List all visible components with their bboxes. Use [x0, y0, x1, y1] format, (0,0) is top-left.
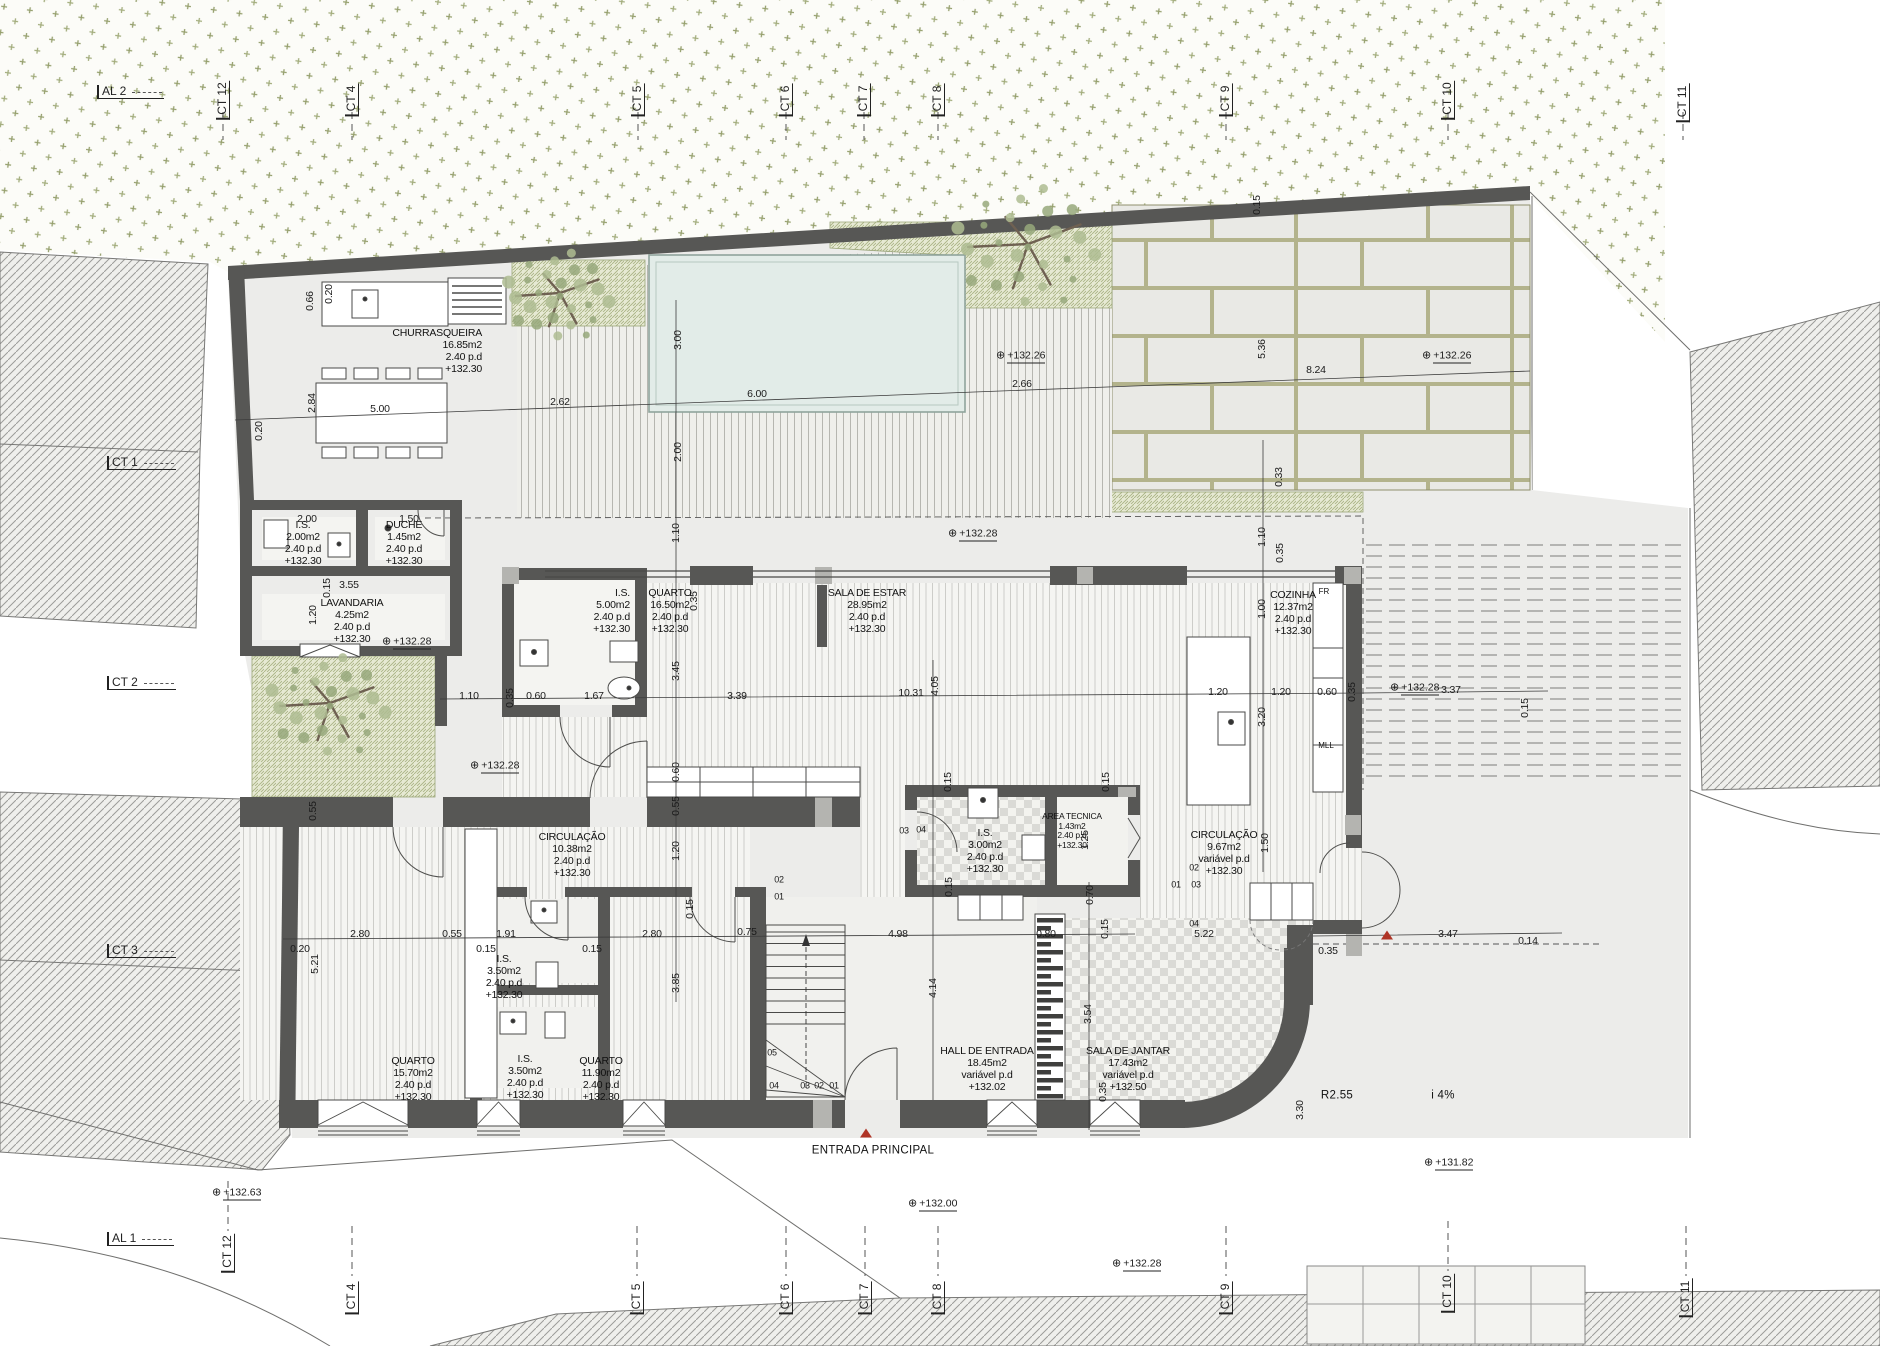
room-label-line: +132.30 [392, 364, 482, 376]
dimension-text: 3.20 [1257, 707, 1268, 727]
room-label-line: +132.30 [648, 624, 691, 636]
level-mark: ⊕+132.28 [382, 637, 431, 648]
dimension-text: 0.15 [943, 772, 954, 792]
dimension-text: 2.84 [307, 393, 318, 413]
level-mark: ⊕+132.63 [212, 1188, 261, 1199]
room-label-is-2: I.S.2.00m22.40 p.d+132.30 [285, 520, 322, 568]
level-mark: ⊕+132.26 [996, 351, 1045, 362]
grid-label-ct-2: CT 2 [107, 676, 176, 690]
room-label-area-tecnica: AREA TECNICA1.43m22.40 p.d+132.30 [1042, 812, 1102, 851]
dimension-text: 0.15 [582, 944, 602, 955]
annotation-i-4-: i 4% [1431, 1090, 1455, 1102]
dimension-text: 0.33 [1274, 467, 1285, 487]
text-layer: CHURRASQUEIRA16.85m22.40 p.d+132.30I.S.2… [0, 0, 1880, 1346]
annotation-mll: MLL [1318, 742, 1334, 750]
door-number: 02 [774, 876, 784, 885]
dimension-text: 1.50 [399, 514, 419, 525]
dimension-text: 3.45 [671, 661, 682, 681]
dimension-text: 3.30 [1295, 1100, 1306, 1120]
level-symbol: ⊕ [1422, 350, 1431, 362]
dimension-text: 1.00 [1257, 599, 1268, 619]
door-number: 02 [1189, 864, 1199, 873]
dimension-text: 3.37 [1441, 685, 1461, 696]
room-label-line: +132.30 [321, 634, 384, 646]
room-label-circulacao-9: CIRCULAÇÃO9.67m2variável p.d+132.30 [1191, 830, 1258, 878]
level-value: +132.00 [919, 1198, 957, 1212]
grid-label-ct-4: CT 4 [345, 84, 359, 117]
side-entrance-triangle [1381, 931, 1393, 940]
grid-label-ct-5: CT 5 [631, 84, 645, 117]
room-label-line: +132.30 [539, 868, 606, 880]
door-number: 04 [1189, 920, 1199, 929]
level-symbol: ⊕ [908, 1198, 917, 1210]
dimension-text: 0.15 [944, 877, 955, 897]
room-label-line: +132.02 [940, 1082, 1033, 1094]
door-number: 05 [767, 1049, 777, 1058]
dimension-text: 0.35 [1098, 1082, 1109, 1102]
dimension-text: 0.35 [689, 591, 700, 611]
dimension-text: 0.20 [254, 421, 265, 441]
entrance-triangle [860, 1129, 872, 1138]
room-label-cozinha: COZINHA12.37m22.40 p.d+132.30 [1270, 590, 1316, 638]
dimension-text: 1.20 [671, 841, 682, 861]
dimension-text: 2.80 [350, 929, 370, 940]
dimension-text: 1.25 [1080, 830, 1091, 850]
dimension-text: 1.91 [496, 929, 516, 940]
room-label-duche: DUCHE1.45m22.40 p.d+132.30 [386, 520, 423, 568]
dimension-text: 1.10 [459, 691, 479, 702]
level-value: +132.26 [1007, 350, 1045, 364]
dimension-text: 0.80 [1036, 929, 1056, 940]
dimension-text: 0.55 [671, 796, 682, 816]
level-symbol: ⊕ [382, 636, 391, 648]
level-mark: ⊕+131.82 [1424, 1158, 1473, 1169]
grid-label-ct-9: CT 9 [1219, 84, 1233, 117]
dimension-text: 0.14 [1518, 936, 1538, 947]
room-label-line: +132.30 [285, 556, 322, 568]
dimension-text: 1.20 [308, 605, 319, 625]
grid-label-ct-1: CT 1 [107, 456, 176, 470]
room-label-line: +132.30 [593, 624, 630, 636]
dimension-text: 1.50 [1260, 833, 1271, 853]
dimension-text: 0.15 [1252, 195, 1263, 215]
grid-label-ct-11: CT 11 [1679, 1279, 1693, 1318]
level-symbol: ⊕ [948, 528, 957, 540]
dimension-text: 1.20 [1208, 687, 1228, 698]
door-number: 02 [814, 1082, 824, 1091]
door-number: 03 [1191, 881, 1201, 890]
grid-label-ct-12: CT 12 [221, 1233, 235, 1272]
dimension-text: 2.00 [297, 514, 317, 525]
dimension-text: 0.15 [476, 944, 496, 955]
dimension-text: 0.35 [1347, 682, 1358, 702]
room-label-is-35-b: I.S.3.50m22.40 p.d+132.30 [507, 1054, 544, 1102]
door-number: 04 [916, 826, 926, 835]
level-mark: ⊕+132.28 [1112, 1259, 1161, 1270]
room-label-is-3: I.S.3.00m22.40 p.d+132.30 [967, 828, 1004, 876]
grid-label-ct-5: CT 5 [630, 1282, 644, 1315]
level-symbol: ⊕ [212, 1187, 221, 1199]
dimension-text: 0.35 [505, 688, 516, 708]
grid-label-ct-8: CT 8 [931, 84, 945, 117]
dimension-text: 3.54 [1083, 1004, 1094, 1024]
level-value: +132.28 [1123, 1258, 1161, 1272]
dimension-text: 0.15 [685, 899, 696, 919]
grid-label-ct-12: CT 12 [216, 80, 230, 119]
level-mark: ⊕+132.28 [1390, 683, 1439, 694]
dimension-text: 6.00 [747, 389, 767, 400]
dimension-text: 1.67 [584, 691, 604, 702]
room-label-quarto-11: QUARTO11.90m22.40 p.d+132.30 [579, 1056, 622, 1104]
dimension-text: 1.20 [1271, 687, 1291, 698]
level-value: +132.28 [393, 636, 431, 650]
level-value: +132.26 [1433, 350, 1471, 364]
grid-label-al-2: AL 2 [97, 85, 164, 99]
level-mark: ⊕+132.00 [908, 1199, 957, 1210]
dimension-text: 5.21 [310, 954, 321, 974]
room-label-line: +132.30 [967, 864, 1004, 876]
room-label-line: +132.30 [1270, 626, 1316, 638]
dimension-text: 4.14 [928, 978, 939, 998]
room-label-line: +132.30 [391, 1092, 434, 1104]
grid-label-ct-7: CT 7 [858, 1282, 872, 1315]
dimension-text: 3.85 [671, 973, 682, 993]
dimension-text: 5.36 [1257, 339, 1268, 359]
dimension-text: 4.98 [888, 929, 908, 940]
dimension-text: 5.00 [370, 404, 390, 415]
level-symbol: ⊕ [996, 350, 1005, 362]
dimension-text: 5.22 [1194, 929, 1214, 940]
grid-label-ct-7: CT 7 [857, 84, 871, 117]
dimension-text: 10.31 [898, 688, 923, 699]
level-value: +132.28 [481, 760, 519, 774]
room-label-line: +132.30 [1042, 841, 1102, 851]
dimension-text: 3.55 [339, 580, 359, 591]
room-label-is-5: I.S.5.00m22.40 p.d+132.30 [593, 588, 630, 636]
dimension-text: 0.55 [308, 801, 319, 821]
grid-label-ct-9: CT 9 [1219, 1282, 1233, 1315]
room-label-line: +132.30 [507, 1090, 544, 1102]
level-value: +131.82 [1435, 1157, 1473, 1171]
room-label-churrasqueira: CHURRASQUEIRA16.85m22.40 p.d+132.30 [392, 328, 482, 376]
room-label-line: +132.30 [386, 556, 423, 568]
dimension-text: 4.05 [930, 676, 941, 696]
room-label-quarto-15: QUARTO15.70m22.40 p.d+132.30 [391, 1056, 434, 1104]
level-symbol: ⊕ [470, 760, 479, 772]
dimension-text: 8.24 [1306, 365, 1326, 376]
dimension-text: 2.66 [1012, 379, 1032, 390]
dimension-text: 0.35 [1318, 946, 1338, 957]
grid-label-ct-8: CT 8 [931, 1282, 945, 1315]
grid-label-ct-10: CT 10 [1441, 1273, 1455, 1312]
dimension-text: 2.62 [550, 397, 570, 408]
dimension-text: 1.10 [671, 523, 682, 543]
annotation-fr: FR [1319, 588, 1330, 596]
level-mark: ⊕+132.28 [948, 529, 997, 540]
room-label-hall-de-entrada: HALL DE ENTRADA18.45m2variável p.d+132.0… [940, 1046, 1033, 1094]
dimension-text: 0.75 [737, 927, 757, 938]
grid-label-ct-6: CT 6 [779, 1282, 793, 1315]
dimension-text: 0.60 [671, 762, 682, 782]
dimension-text: 3.47 [1438, 929, 1458, 940]
room-label-is-35-a: I.S.3.50m22.40 p.d+132.30 [486, 954, 523, 1002]
room-label-lavandaria: LAVANDARIA4.25m22.40 p.d+132.30 [321, 598, 384, 646]
dimension-text: 0.55 [442, 929, 462, 940]
level-symbol: ⊕ [1390, 682, 1399, 694]
room-label-quarto-16: QUARTO16.50m22.40 p.d+132.30 [648, 588, 691, 636]
dimension-text: 2.80 [642, 929, 662, 940]
grid-label-ct-10: CT 10 [1441, 80, 1455, 119]
dimension-text: 0.60 [526, 691, 546, 702]
room-label-line: +132.30 [828, 624, 906, 636]
dimension-text: 0.15 [1100, 919, 1111, 939]
level-value: +132.28 [959, 528, 997, 542]
dimension-text: 0.15 [322, 578, 333, 598]
dimension-text: 0.20 [290, 944, 310, 955]
grid-label-ct-11: CT 11 [1676, 84, 1690, 123]
door-number: 04 [769, 1082, 779, 1091]
room-label-line: +132.30 [579, 1092, 622, 1104]
dimension-text: 0.66 [305, 291, 316, 311]
level-mark: ⊕+132.26 [1422, 351, 1471, 362]
door-number: 03 [800, 1082, 810, 1091]
door-number: 01 [829, 1082, 839, 1091]
dimension-text: 2.00 [673, 442, 684, 462]
grid-label-al-1: AL 1 [107, 1232, 174, 1246]
dimension-text: 0.15 [1520, 698, 1531, 718]
room-label-sala-de-estar: SALA DE ESTAR28.95m22.40 p.d+132.30 [828, 588, 906, 636]
level-value: +132.28 [1401, 682, 1439, 696]
dimension-text: 0.15 [1101, 772, 1112, 792]
level-symbol: ⊕ [1424, 1157, 1433, 1169]
dimension-text: 0.70 [1085, 885, 1096, 905]
level-symbol: ⊕ [1112, 1258, 1121, 1270]
room-label-line: +132.30 [1191, 866, 1258, 878]
dimension-text: 3.39 [727, 691, 747, 702]
door-number: 03 [899, 827, 909, 836]
grid-label-ct-3: CT 3 [107, 944, 176, 958]
dimension-text: 3.00 [673, 330, 684, 350]
annotation-entrada-principal: ENTRADA PRINCIPAL [812, 1145, 934, 1157]
floor-plan-canvas: CHURRASQUEIRA16.85m22.40 p.d+132.30I.S.2… [0, 0, 1880, 1346]
level-mark: ⊕+132.28 [470, 761, 519, 772]
grid-label-ct-6: CT 6 [779, 84, 793, 117]
dimension-text: 0.60 [1317, 687, 1337, 698]
room-label-line: +132.30 [486, 990, 523, 1002]
level-value: +132.63 [223, 1187, 261, 1201]
grid-label-ct-4: CT 4 [345, 1282, 359, 1315]
door-number: 01 [1171, 881, 1181, 890]
door-number: 01 [774, 893, 784, 902]
room-label-circulacao-10: CIRCULAÇÃO10.38m22.40 p.d+132.30 [539, 832, 606, 880]
annotation-r2-55: R2.55 [1321, 1090, 1353, 1102]
dimension-text: 0.20 [324, 284, 335, 304]
dimension-text: 1.10 [1257, 527, 1268, 547]
dimension-text: 0.35 [1275, 543, 1286, 563]
